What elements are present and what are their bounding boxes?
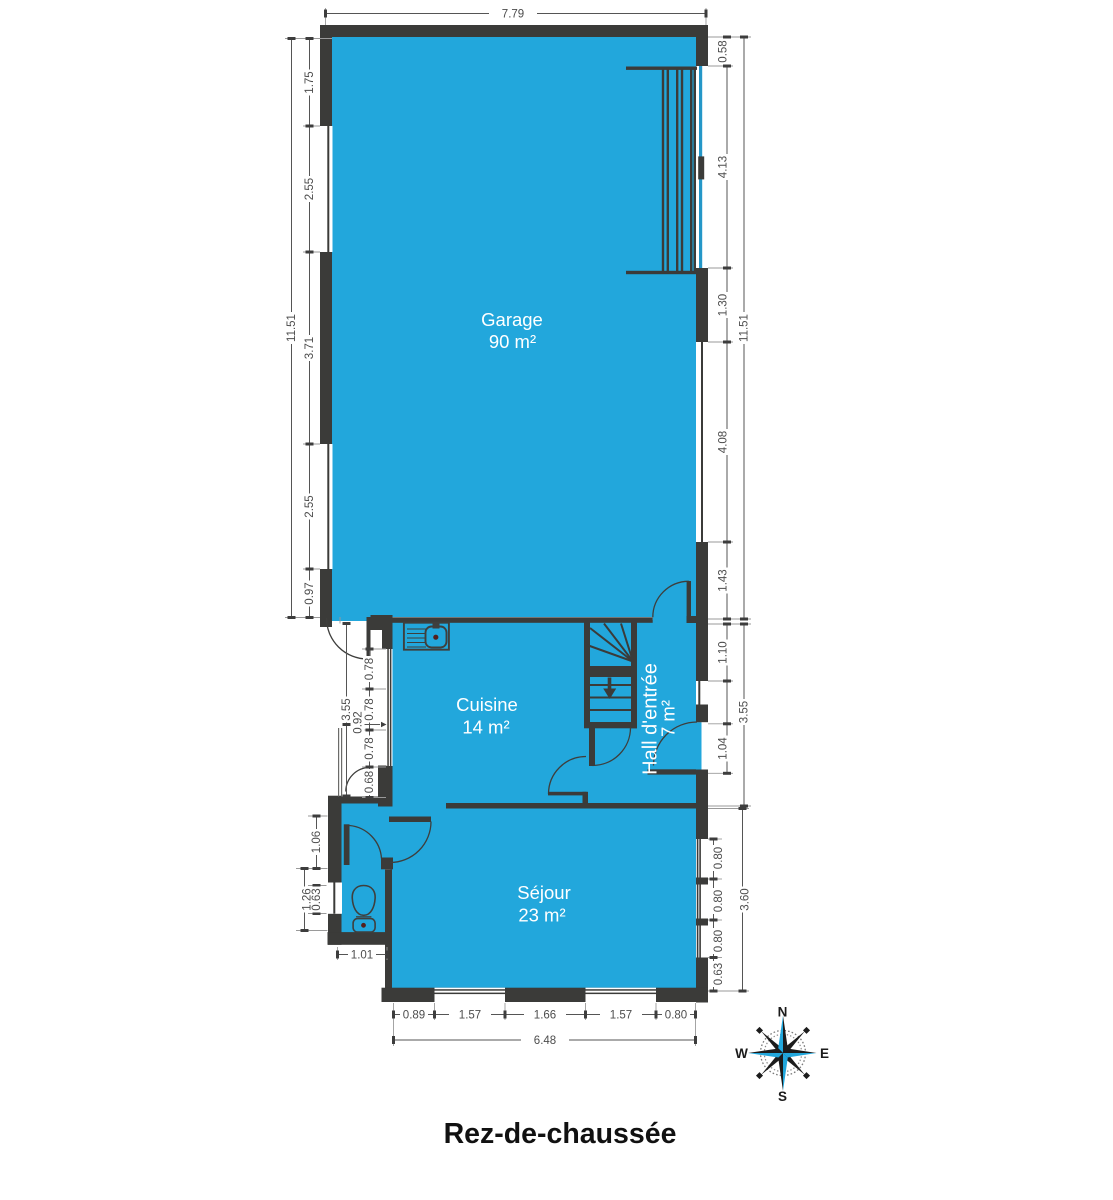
svg-text:0.58: 0.58	[718, 40, 730, 62]
svg-text:0.68: 0.68	[364, 771, 376, 793]
svg-text:S: S	[778, 1089, 787, 1104]
svg-text:1.57: 1.57	[459, 1010, 481, 1022]
svg-text:6.48: 6.48	[534, 1035, 556, 1047]
svg-text:1.75: 1.75	[304, 71, 316, 93]
svg-text:Garage: Garage	[481, 309, 543, 330]
svg-text:0.97: 0.97	[304, 582, 316, 604]
svg-text:0.80: 0.80	[713, 930, 725, 952]
svg-text:23 m²: 23 m²	[518, 905, 565, 926]
svg-text:2.55: 2.55	[304, 495, 316, 517]
svg-text:7 m²: 7 m²	[658, 700, 679, 737]
svg-text:1.43: 1.43	[718, 569, 730, 591]
svg-text:1.01: 1.01	[351, 950, 373, 962]
svg-text:Cuisine: Cuisine	[456, 694, 518, 715]
svg-text:E: E	[820, 1046, 829, 1061]
svg-text:0.63: 0.63	[713, 963, 725, 985]
svg-text:1.04: 1.04	[718, 737, 730, 760]
svg-text:0.80: 0.80	[713, 847, 725, 869]
svg-text:W: W	[735, 1046, 748, 1061]
svg-text:3.60: 3.60	[739, 888, 751, 910]
svg-text:0.80: 0.80	[665, 1010, 687, 1022]
svg-text:0.92: 0.92	[353, 711, 365, 733]
svg-text:7.79: 7.79	[502, 9, 524, 21]
svg-text:1.57: 1.57	[610, 1010, 632, 1022]
svg-text:1.06: 1.06	[311, 831, 323, 853]
svg-text:11.51: 11.51	[286, 314, 298, 342]
svg-text:0.78: 0.78	[364, 658, 376, 680]
svg-text:4.08: 4.08	[718, 431, 730, 453]
svg-text:0.78: 0.78	[364, 698, 376, 720]
svg-text:3.55: 3.55	[341, 698, 353, 720]
svg-text:4.13: 4.13	[718, 156, 730, 178]
svg-text:0.78: 0.78	[364, 737, 376, 759]
svg-text:1.10: 1.10	[718, 641, 730, 663]
svg-text:0.89: 0.89	[403, 1010, 425, 1022]
svg-text:1.66: 1.66	[534, 1010, 556, 1022]
svg-text:2.55: 2.55	[304, 178, 316, 200]
svg-text:N: N	[778, 1005, 788, 1020]
svg-text:1.30: 1.30	[718, 294, 730, 316]
svg-text:11.51: 11.51	[739, 314, 751, 342]
svg-text:Rez-de-chaussée: Rez-de-chaussée	[444, 1118, 677, 1150]
svg-text:0.80: 0.80	[713, 890, 725, 912]
svg-text:0.63: 0.63	[311, 888, 323, 910]
svg-text:3.55: 3.55	[739, 701, 751, 723]
svg-text:90 m²: 90 m²	[489, 331, 536, 352]
svg-text:3.71: 3.71	[304, 337, 316, 359]
svg-text:14 m²: 14 m²	[462, 717, 509, 738]
svg-text:Séjour: Séjour	[517, 882, 570, 903]
